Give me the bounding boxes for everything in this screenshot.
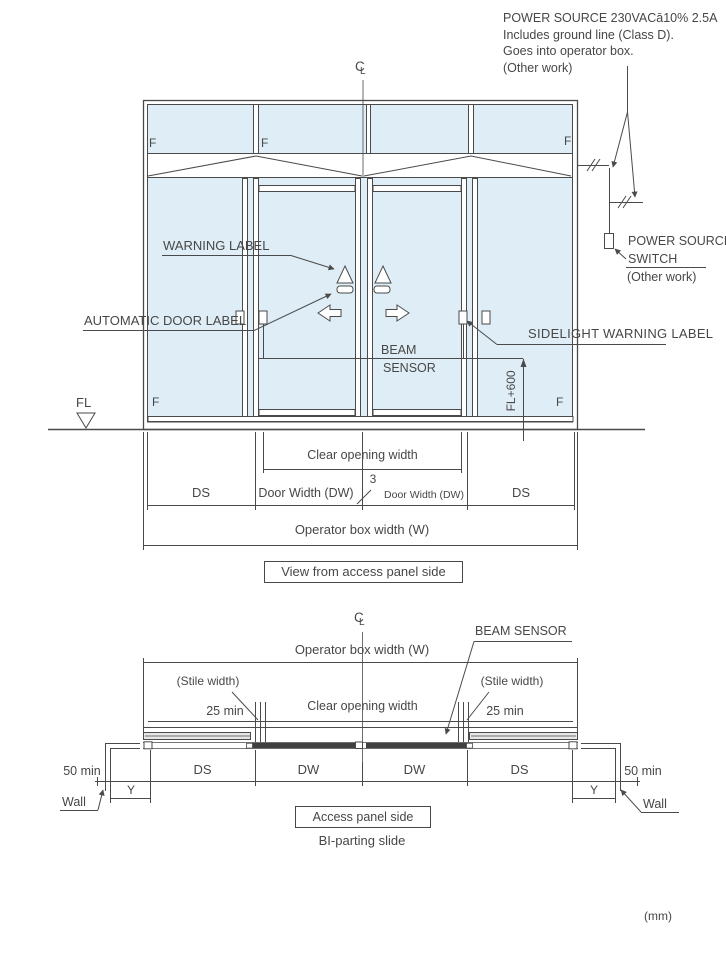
fixed-glass-label: F [564, 135, 571, 149]
floor-level-marker [77, 413, 95, 428]
floor-level-label: FL [76, 396, 91, 411]
fl600-dimension-label: FL+600 [505, 369, 519, 413]
beam-sensor-text-line2: SENSOR [383, 361, 436, 375]
plan-25min-left: 25 min [191, 704, 259, 718]
belt-line-right [364, 156, 571, 176]
centerline-symbol-top: C L [352, 59, 368, 81]
beam-sensor-unit [459, 311, 467, 324]
power-note: POWER SOURCE 230VACā10% 2.5A Includes gr… [503, 10, 717, 76]
plan-dw-right: DW [362, 763, 467, 778]
power-note-line2: Includes ground line (Class D). [503, 27, 717, 44]
elevation-drawing [48, 80, 666, 441]
fixed-glass-label: F [261, 137, 268, 151]
plan-clear-opening-width: Clear opening width [263, 699, 462, 713]
plan-y-left: Y [112, 784, 150, 798]
plan-door-right [366, 743, 470, 748]
plan-dw-left: DW [255, 763, 362, 778]
dim-operator-box-width: Operator box width (W) [242, 523, 482, 538]
plan-ds-right: DS [467, 763, 572, 778]
power-switch-symbol [605, 234, 614, 249]
plan-y-right: Y [573, 784, 615, 798]
elevation-caption: View from access panel side [264, 561, 463, 583]
plan-beam-sensor-text: BEAM SENSOR [475, 624, 567, 638]
power-note-line4: (Other work) [503, 60, 717, 77]
dim-center-gap: 3 [366, 473, 380, 487]
technical-drawing-page: POWER SOURCE 230VACā10% 2.5A Includes gr… [0, 0, 726, 955]
plan-25min-right: 25 min [471, 704, 539, 718]
door-label-sticker-right [374, 286, 390, 293]
plan-door-left [252, 743, 360, 748]
units-note: (mm) [644, 910, 672, 924]
plan-caption: Access panel side [295, 806, 431, 828]
sidelight-warning-label-text: SIDELIGHT WARNING LABEL [528, 327, 713, 342]
fixed-glass-label: F [556, 396, 563, 410]
door-label-sticker-left [337, 286, 353, 293]
plan-50min-right: 50 min [614, 764, 672, 778]
dim-door-width-left: Door Width (DW) [256, 486, 356, 500]
plan-operator-box-width: Operator box width (W) [262, 643, 462, 658]
beam-sensor-text-line1: BEAM [381, 343, 416, 357]
plan-50min-left: 50 min [53, 764, 111, 778]
plan-stile-width-right: (Stile width) [462, 675, 562, 689]
dim-ds-left: DS [147, 486, 255, 501]
plan-wall-right: Wall [643, 797, 667, 811]
power-note-line3: Goes into operator box. [503, 43, 717, 60]
plan-ds-left: DS [150, 763, 255, 778]
power-switch-label-line3: (Other work) [627, 270, 696, 284]
beam-sensor-unit [259, 311, 267, 324]
plan-wall-left: Wall [62, 795, 86, 809]
belt-line-left [148, 156, 362, 176]
dim-door-width-right: Door Width (DW) [376, 489, 472, 501]
fixed-glass-label: F [149, 137, 156, 151]
plan-stile-width-left: (Stile width) [158, 675, 258, 689]
centerline-symbol-bottom: C L [351, 610, 367, 632]
dim-ds-right: DS [467, 486, 575, 501]
power-note-line1: POWER SOURCE 230VACā10% 2.5A [503, 10, 717, 27]
transom-glass [148, 105, 573, 153]
warning-label-text: WARNING LABEL [163, 239, 269, 254]
power-switch-label-line1: POWER SOURCE [628, 234, 726, 248]
automatic-door-label-text: AUTOMATIC DOOR LABEL [84, 314, 246, 329]
power-switch-label-line2: SWITCH [628, 252, 677, 266]
plan-subcaption: BI-parting slide [292, 834, 432, 849]
dim-clear-opening-width: Clear opening width [263, 448, 462, 462]
fixed-glass-label: F [152, 396, 159, 410]
beam-sensor-unit [482, 311, 490, 324]
